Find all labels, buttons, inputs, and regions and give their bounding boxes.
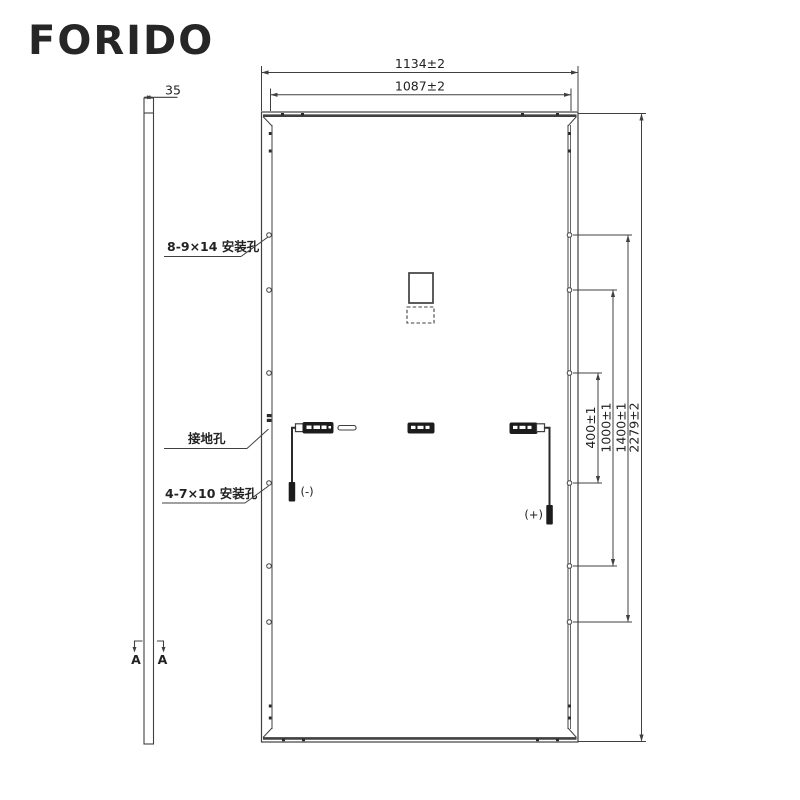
drain-hole — [556, 739, 559, 741]
height-label: 2279±2 — [627, 402, 642, 452]
outer-width-label: 1134±2 — [395, 56, 445, 71]
section-hook-left — [135, 641, 143, 647]
dim-arrow — [596, 373, 600, 380]
thickness-dim-label: 35 — [165, 83, 181, 98]
dim-arrow — [596, 476, 600, 483]
drain-hole — [269, 150, 272, 153]
width-dimensions: 1134±2 1087±2 — [262, 56, 579, 111]
terminal-slot — [411, 426, 416, 429]
drain-hole — [269, 705, 272, 708]
dim-arrow — [271, 93, 278, 97]
drain-hole — [568, 150, 571, 153]
hole-span-mid-label: 1000±1 — [599, 402, 614, 452]
mount-hole — [267, 233, 272, 238]
grounding-hole-mark — [267, 414, 272, 417]
height-dimensions: 2279±2 1400±1 1000±1 400±1 — [573, 114, 646, 742]
brand-logo: FORIDO — [28, 18, 214, 64]
terminal-slot — [528, 426, 532, 429]
mount-hole — [267, 371, 272, 376]
drain-hole — [269, 717, 272, 720]
drain-hole — [301, 113, 304, 115]
mount-hole — [567, 233, 572, 238]
callouts: 8-9×14 安装孔 接地孔 4-7×10 安装孔 — [162, 237, 269, 503]
inner-width-label: 1087±2 — [395, 79, 445, 94]
dim-arrow — [639, 735, 643, 742]
drain-hole — [568, 132, 571, 135]
terminal-slot — [426, 426, 430, 429]
mount-hole — [267, 481, 272, 486]
dim-arrow — [571, 70, 578, 74]
mount-hole — [567, 288, 572, 293]
negative-label: (-) — [301, 485, 314, 499]
mount-hole — [567, 564, 572, 569]
mount-hole — [567, 620, 572, 625]
mc4-connector-positive — [546, 505, 553, 525]
dim-arrow — [611, 290, 615, 297]
mounting-holes-small-label: 4-7×10 安装孔 — [165, 486, 258, 501]
terminal-slot — [520, 426, 526, 429]
drain-hole — [568, 705, 571, 708]
dim-arrow — [639, 114, 643, 121]
dim-arrow — [626, 615, 630, 622]
terminal-slot — [322, 426, 327, 430]
hole-span-small-label: 400±1 — [583, 406, 598, 448]
terminal-slot — [418, 426, 424, 429]
hole-span-large-label: 1400±1 — [614, 402, 629, 452]
dim-arrow — [564, 93, 571, 97]
drawing-canvas: FORIDO 35 A A — [0, 0, 800, 800]
grounding-hole-label: 接地孔 — [188, 431, 226, 446]
cable-gland-left — [296, 424, 304, 432]
drain-hole — [269, 132, 272, 135]
side-profile-bar — [144, 98, 154, 744]
mounting-holes-large-label: 8-9×14 安装孔 — [167, 239, 260, 254]
side-view: 35 A A — [131, 83, 181, 745]
mount-hole — [267, 288, 272, 293]
mount-hole — [567, 371, 572, 376]
drain-hole — [281, 113, 284, 115]
terminal-slot — [307, 426, 312, 430]
drain-hole — [282, 739, 285, 741]
drain-hole — [568, 717, 571, 720]
section-label-right: A — [158, 652, 168, 667]
terminal-slot — [329, 426, 332, 429]
mount-hole — [567, 481, 572, 486]
dim-arrow — [626, 235, 630, 242]
terminal-slot — [314, 426, 321, 430]
dim-arrow — [262, 70, 269, 74]
label-strip — [338, 426, 356, 431]
cable-gland-right — [537, 424, 545, 432]
drain-hole — [556, 113, 559, 115]
section-label-left: A — [131, 652, 141, 667]
drain-hole — [521, 113, 524, 115]
drain-hole — [536, 739, 539, 741]
drain-hole — [302, 739, 305, 741]
technical-drawing: FORIDO 35 A A — [0, 0, 800, 800]
grounding-hole-mark — [267, 419, 272, 422]
positive-label: (+) — [524, 508, 543, 522]
junction-box-body — [409, 273, 433, 303]
section-hook-right — [157, 641, 164, 647]
terminal-slot — [513, 426, 518, 429]
mount-hole — [267, 620, 272, 625]
mount-hole — [267, 564, 272, 569]
dim-arrow — [611, 559, 615, 566]
mc4-connector-negative — [289, 482, 296, 502]
